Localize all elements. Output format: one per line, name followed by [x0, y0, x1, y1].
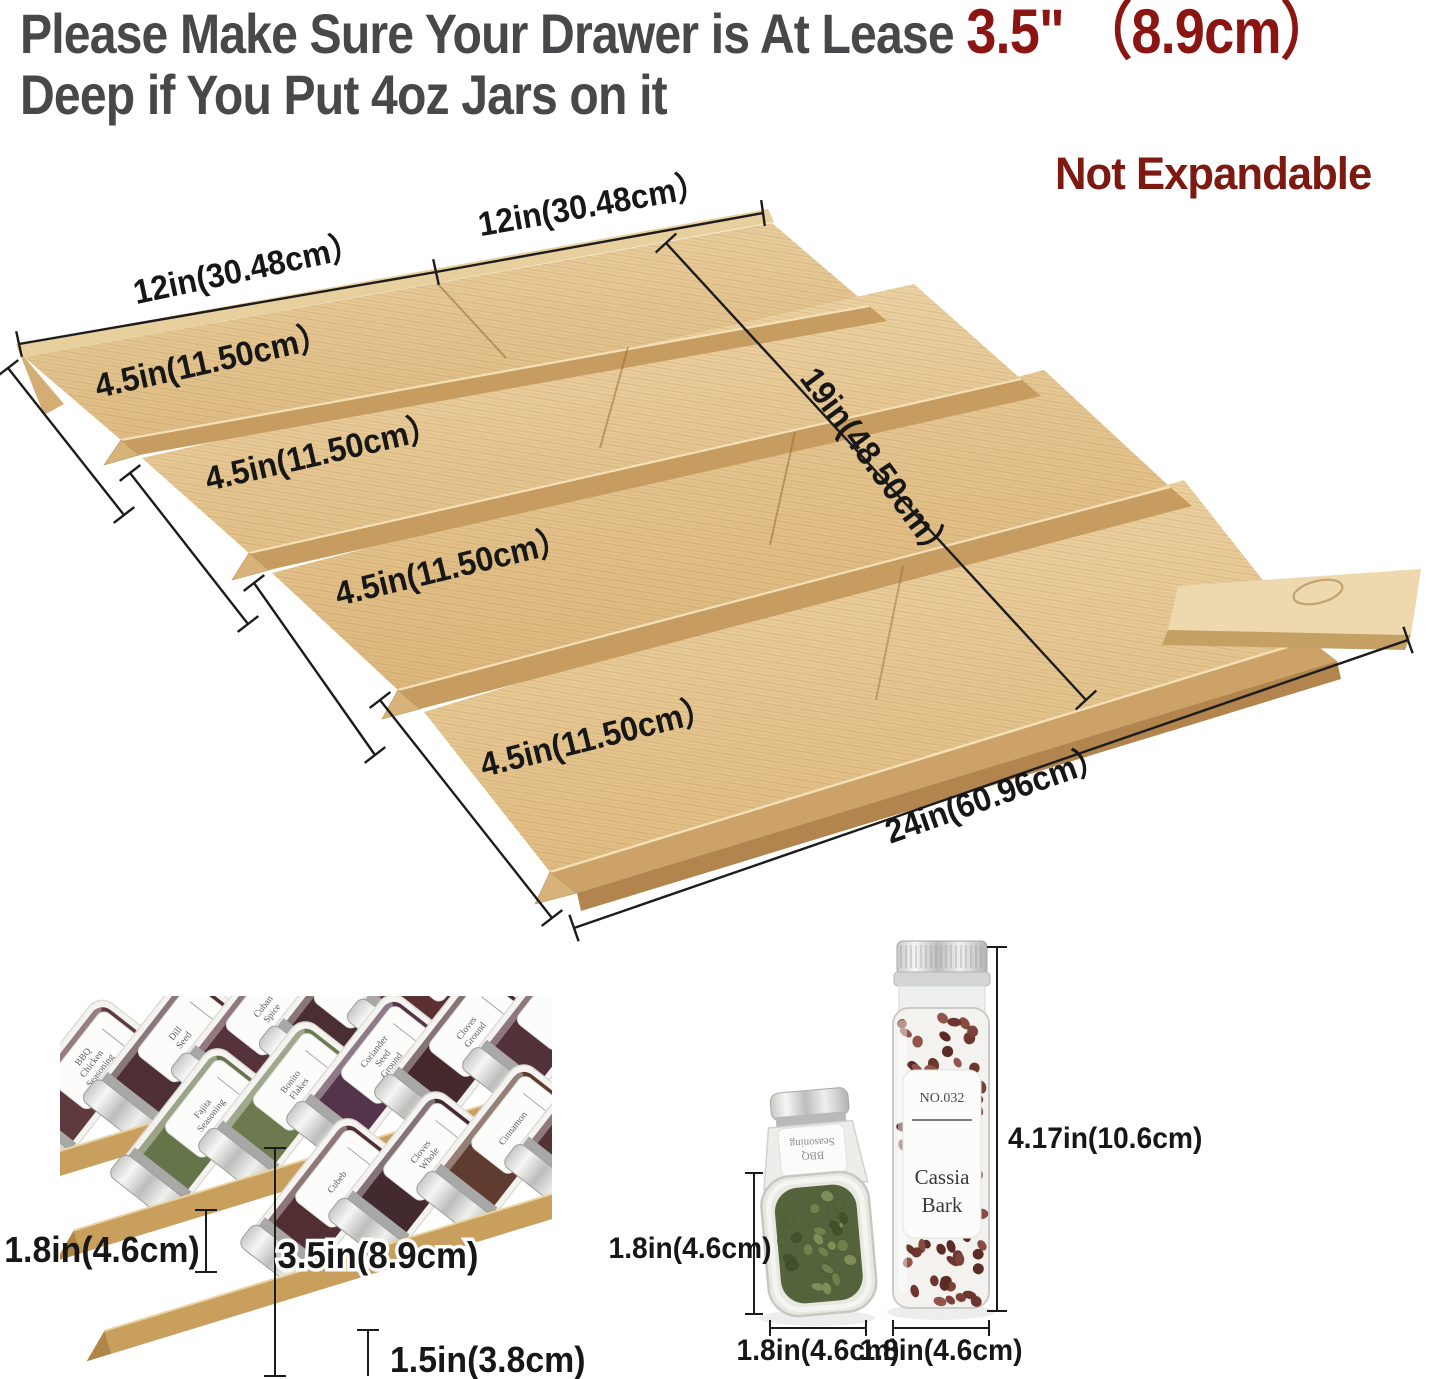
tall-jar-label-no: NO.032 [920, 1091, 965, 1106]
tall-jar-label-name-1: Cassia [915, 1165, 971, 1189]
jar-label [399, 901, 495, 1004]
jar-label [556, 1047, 652, 1150]
dim-label-tall-width: 1.8in(4.6cm) [860, 1334, 1023, 1367]
jar-label-rule [278, 975, 300, 992]
bean [912, 1036, 923, 1048]
jar-glass-highlight [368, 897, 456, 1006]
jar-label-rule [454, 921, 476, 938]
tall-jar-label-name-2: Bark [922, 1193, 963, 1217]
infographic-canvas: Please Make Sure Your Drawer is At Lease… [0, 0, 1445, 1379]
short-jar-label-line2: Seasoning [789, 1135, 835, 1149]
jar-label-rule [366, 948, 388, 965]
jar-label-text: ChiliPepper [428, 939, 461, 973]
dim-line-lip-height [357, 1330, 379, 1376]
product-diagram: 12in(30.48cm） 12in(30.48cm） 4.5in(11.50c… [0, 0, 1445, 1379]
dim-label-short-height: 1.8in(4.6cm) [609, 1232, 772, 1265]
bamboo-organizer [16, 209, 1421, 911]
dim-label-lip-height: 1.5in(3.8cm) [390, 1340, 586, 1379]
dim-label-back-height: 1.8in(4.6cm) [4, 1230, 200, 1270]
tall-jar-cap-flange [894, 972, 990, 986]
drawer-photo-content: BBQChickenSeasoningDillSeedCubanSpiceChi… [0, 839, 700, 1368]
short-jar-label-line1: BBQ [801, 1149, 824, 1162]
jar-label-rule [612, 1067, 634, 1084]
jar-label-rule [569, 970, 591, 987]
bean [973, 1249, 984, 1260]
tall-spice-jar: NO.032 Cassia Bark [893, 941, 990, 1309]
wood-wedge-endcap [25, 1154, 57, 1185]
jar-size-photo: BBQ Seasoning NO.032 Cassi [609, 941, 1203, 1367]
dim-label-jar-height: 3.5in(8.9cm) [278, 1235, 479, 1276]
short-spice-jar: BBQ Seasoning [752, 1086, 879, 1319]
dim-label-tall-height: 4.17in(10.6cm) [1008, 1122, 1202, 1155]
drawer-photo: BBQChickenSeasoningDillSeedCubanSpiceChi… [0, 839, 700, 1368]
